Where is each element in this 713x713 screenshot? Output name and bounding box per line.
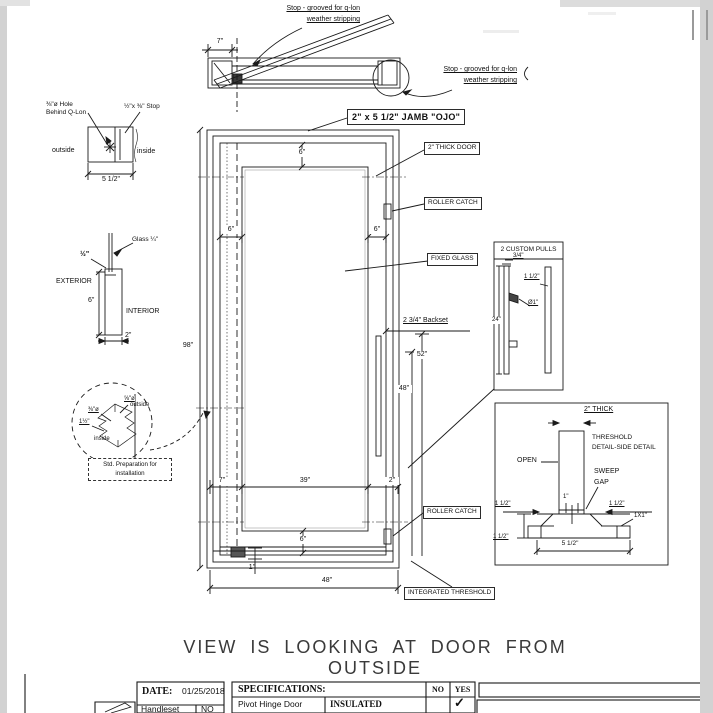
handleset-label: Handleset — [141, 705, 179, 713]
stop-weatherstrip-label-top-line1: Stop - grooved for q-lon — [250, 5, 360, 13]
scan-artifact-1 — [483, 30, 519, 33]
specifications-header: SPECIFICATIONS: — [238, 684, 326, 696]
top-plan-view — [202, 15, 528, 112]
roller-catch-bottom-callout: ROLLER CATCH — [423, 506, 481, 519]
integrated-threshold-callout: INTEGRATED THRESHOLD — [404, 587, 495, 600]
hole-label-line1: ⅜"ø Hole — [46, 101, 73, 108]
scan-artifact-2 — [588, 12, 616, 15]
thick-door-callout: 2" THICK DOOR — [424, 142, 480, 155]
spec-row-item: Pivot Hinge Door — [238, 700, 302, 710]
top-right-edge-strip — [560, 0, 700, 7]
right-scrollbar-track[interactable] — [700, 0, 713, 713]
stop-weatherstrip-label-right-line1: Stop - grooved for q-lon — [427, 66, 517, 74]
hole-label-line2: Behind Q-Lon — [46, 109, 86, 116]
std-preparation-note: Std. Preparation for installation — [88, 458, 172, 481]
pivot-prep-detail — [72, 383, 210, 463]
insulated-yes-checkmark: ✓ — [454, 696, 465, 711]
jamb-outside-label: outside — [52, 147, 75, 155]
dim-7in-head: 7" — [208, 38, 232, 46]
custom-pulls-title: 2 CUSTOM PULLS — [494, 246, 563, 253]
dim-threshold-left-112: 1 1/2" — [495, 501, 510, 508]
dim-threshold-base: 5 1/2" — [555, 540, 585, 547]
glass-stop-detail — [91, 233, 133, 345]
dim-threshold-1x1: 1X1" — [634, 513, 647, 520]
threshold-title-line1: THRESHOLD — [592, 434, 632, 441]
left-edge-strip — [0, 0, 7, 713]
stop-size-label: ½"x ⅜" Stop — [124, 103, 160, 110]
custom-pulls-detail — [408, 242, 563, 468]
dim-left-6: 6" — [224, 226, 238, 234]
std-preparation-line2: installation — [90, 470, 170, 479]
jamb-section-detail — [85, 112, 140, 180]
stop-weatherstrip-label-right-line2: weather stripping — [427, 77, 517, 85]
scrollbar-thumb-inner[interactable] — [706, 10, 708, 40]
dim-stop-width: 2" — [125, 332, 131, 340]
dim-1half: 1½" — [79, 419, 89, 426]
fixed-glass-callout: FIXED GLASS — [427, 253, 478, 266]
scrollbar-thumb[interactable] — [692, 10, 694, 40]
dim-right-6: 6" — [370, 226, 384, 234]
threshold-thick-label: 2" THICK — [584, 406, 613, 414]
dim-sweep-1: 1" — [563, 494, 568, 501]
stop-weatherstrip-label-top-line2: weather stripping — [250, 16, 360, 24]
jamb-inside-label: inside — [137, 148, 155, 156]
drawing-linework — [0, 0, 713, 713]
column-yes: YES — [450, 685, 475, 694]
pivot-inside-label: inside — [94, 436, 110, 443]
top-left-edge-strip — [0, 0, 30, 6]
dim-stop-height: 6" — [88, 297, 94, 305]
threshold-title-line2: DETAIL-SIDE DETAIL — [592, 444, 656, 451]
dim-threshold-right-112: 1 1/2" — [609, 501, 624, 508]
jamb-ojo-callout: 2" x 5 1/2" JAMB "OJO" — [347, 109, 465, 125]
dim-top-6: 6" — [295, 149, 309, 157]
threshold-open-label: OPEN — [517, 457, 537, 465]
dim-pull-34: 3/4" — [513, 253, 523, 260]
dim-width-48: 48" — [317, 577, 337, 585]
std-preparation-line1: Std. Preparation for — [90, 461, 170, 470]
handleset-value: NO — [201, 705, 214, 713]
pivot-outside-label: outside — [130, 402, 149, 409]
dim-stop-half: ½" — [80, 251, 89, 259]
backset-callout: 2 3/4" Backset — [403, 317, 448, 325]
dim-bottom-7: 7" — [215, 477, 229, 485]
dim-jamb-width: 5 1/2" — [92, 176, 130, 184]
dim-pull-52: 52" — [414, 351, 430, 359]
spec-row-feature: INSULATED — [330, 699, 382, 709]
view-note: VIEW IS LOOKING AT DOOR FROM OUTSIDE — [130, 637, 620, 679]
dim-bottom-6: 6" — [296, 536, 310, 544]
column-no: NO — [426, 685, 450, 694]
date-value: 01/25/2018 — [182, 687, 225, 697]
interior-label: INTERIOR — [126, 308, 159, 316]
sweep-gap-label-line1: SWEEP — [594, 468, 619, 476]
drawing-sheet: Stop - grooved for q-lon weather strippi… — [0, 0, 713, 713]
dim-bottom-2: 2" — [385, 477, 399, 485]
dim-bottom-39: 39" — [296, 477, 314, 485]
dim-pull-dia1: Ø1" — [528, 300, 538, 307]
dim-height-98: 98" — [178, 342, 198, 350]
dim-pull-48: 48" — [396, 385, 412, 393]
dim-pull-112: 1 1/2" — [524, 274, 539, 281]
exterior-label: EXTERIOR — [56, 278, 92, 286]
roller-catch-top-callout: ROLLER CATCH — [424, 197, 482, 210]
date-label: DATE: — [142, 686, 172, 698]
dim-pull-24: 24" — [492, 317, 501, 324]
dim-dia-38: ⅜"ø — [88, 407, 99, 414]
dim-threshold-bl-112: 1 1/2" — [493, 534, 508, 541]
glass-thickness-label: Glass ¼" — [132, 236, 158, 243]
dim-threshold-1: 1" — [246, 564, 258, 572]
sweep-gap-label-line2: GAP — [594, 479, 609, 487]
